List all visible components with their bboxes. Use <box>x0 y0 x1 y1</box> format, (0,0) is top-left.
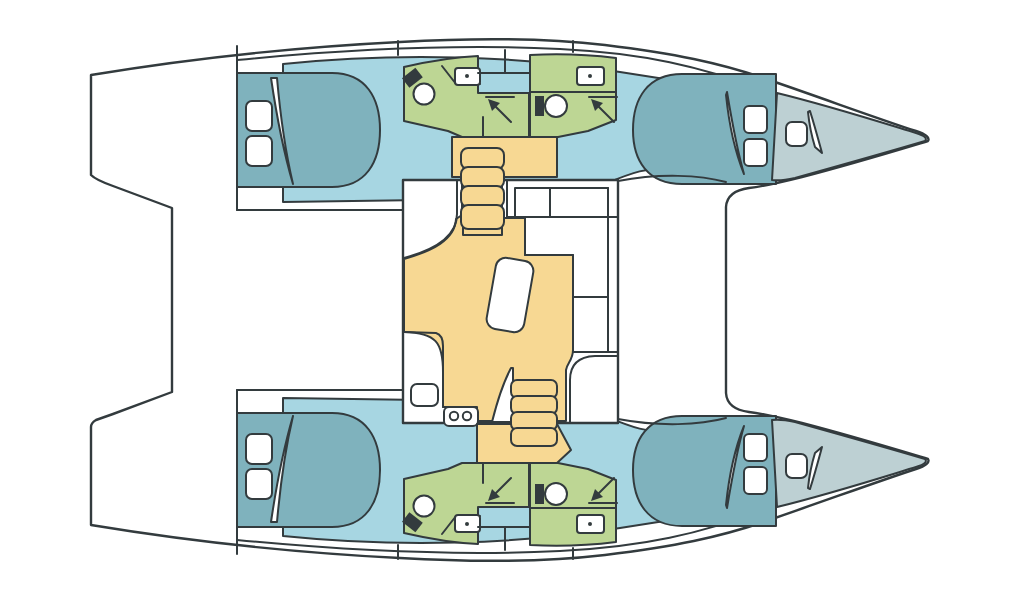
forward-cabin <box>633 74 776 184</box>
forepeak <box>772 93 926 180</box>
aft-cabin <box>237 73 380 187</box>
galley-sink <box>411 384 438 406</box>
basin-drain-dot <box>465 74 469 78</box>
toilet <box>414 84 435 105</box>
stove-burners <box>444 407 478 426</box>
pillow <box>744 106 767 133</box>
stair-step <box>461 186 504 207</box>
forward-bathroom <box>530 54 617 137</box>
toilet-tank <box>535 96 544 116</box>
pillow <box>246 136 272 166</box>
stair-step <box>461 148 504 169</box>
catamaran-floorplan <box>0 0 1024 600</box>
stair-step <box>461 167 504 188</box>
toilet <box>545 95 567 117</box>
pillow <box>246 101 272 131</box>
stair-step <box>461 205 504 229</box>
pillow <box>744 139 767 166</box>
deck-hatch <box>786 122 807 146</box>
basin-drain-dot <box>588 74 592 78</box>
stair-step <box>511 428 557 446</box>
floorplan-canvas <box>0 0 1024 600</box>
